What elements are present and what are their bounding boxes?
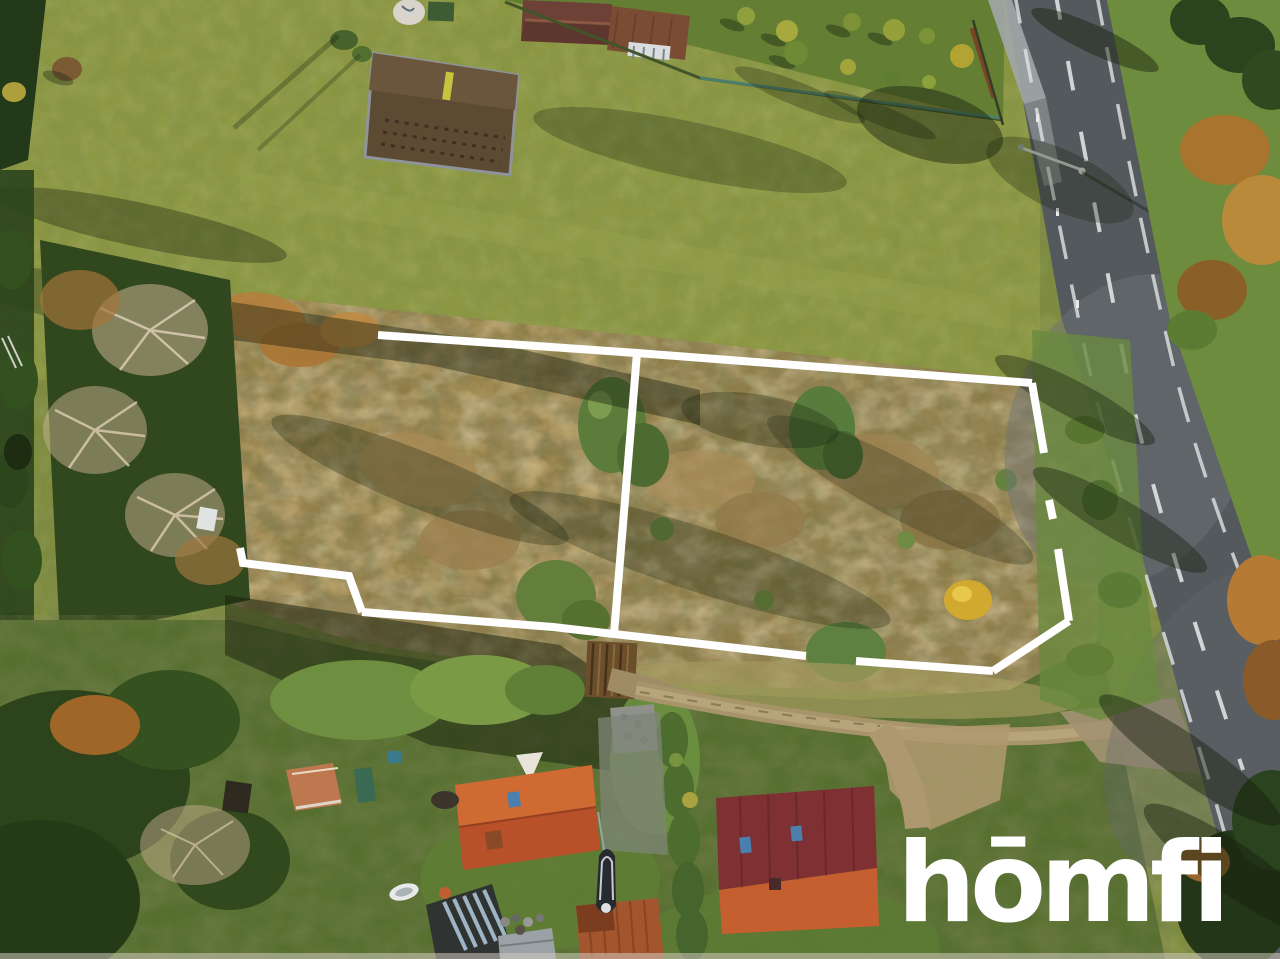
photo-edge-strip [0, 953, 1280, 959]
aerial-photo: hōmfi [0, 0, 1280, 959]
green-shed [428, 2, 455, 22]
blue-garden-toy [388, 751, 401, 763]
white-tank [393, 0, 425, 25]
garden-shed-dark [222, 780, 252, 813]
boundary-right-edge [1049, 500, 1053, 519]
driveway [598, 712, 668, 855]
small-boat [196, 507, 218, 532]
house-salmon-roof [286, 763, 342, 811]
homfi-logo-watermark: hōmfi [897, 828, 1224, 939]
house-red-roof [716, 786, 879, 934]
aerial-photo-scene [0, 0, 1280, 959]
shed-rust-roof [576, 898, 664, 959]
garden-plot [365, 53, 518, 175]
